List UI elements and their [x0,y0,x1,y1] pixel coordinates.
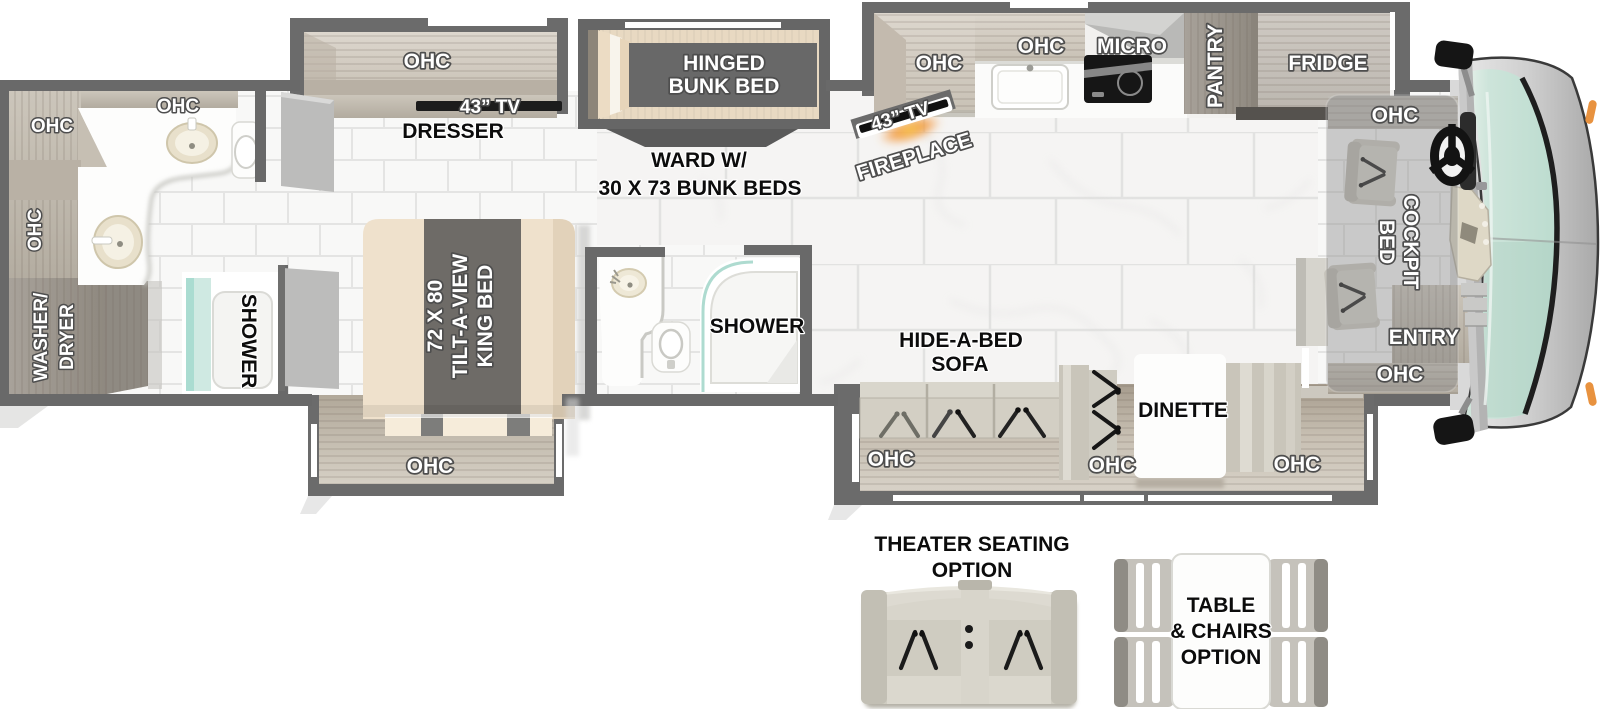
svg-text:SOFA: SOFA [931,353,988,376]
svg-text:DINETTE: DINETTE [1138,399,1228,422]
svg-text:DRESSER: DRESSER [402,120,504,143]
svg-text:HINGED: HINGED [683,52,765,75]
svg-text:FRIDGE: FRIDGE [1288,52,1367,75]
svg-text:OHC: OHC [868,448,915,471]
svg-text:OHC: OHC [1377,363,1424,386]
svg-text:COCKPIT: COCKPIT [1399,195,1422,290]
svg-text:OHC: OHC [157,96,200,117]
svg-text:WARD W/: WARD W/ [651,149,747,172]
svg-text:SHOWER: SHOWER [710,315,805,338]
svg-text:43” TV: 43” TV [460,97,521,118]
svg-text:OHC: OHC [916,52,963,75]
svg-text:OHC: OHC [407,455,454,478]
svg-text:MICRO: MICRO [1097,35,1167,58]
svg-text:OPTION: OPTION [932,559,1013,582]
svg-text:OHC: OHC [25,209,46,252]
svg-text:TABLE: TABLE [1187,594,1255,617]
svg-text:& CHAIRS: & CHAIRS [1170,620,1272,643]
svg-text:OHC: OHC [31,116,74,137]
svg-text:OHC: OHC [404,50,451,73]
svg-text:OHC: OHC [1018,35,1065,58]
svg-text:TILT-A-VIEW: TILT-A-VIEW [449,254,472,379]
svg-text:OHC: OHC [1372,104,1419,127]
svg-text:BED: BED [1375,220,1398,264]
svg-text:HIDE-A-BED: HIDE-A-BED [899,329,1023,352]
svg-text:ENTRY: ENTRY [1389,326,1459,349]
svg-text:OPTION: OPTION [1181,646,1262,669]
svg-text:30 X 73 BUNK BEDS: 30 X 73 BUNK BEDS [598,177,801,200]
svg-text:BUNK BED: BUNK BED [669,75,780,98]
svg-text:SHOWER: SHOWER [237,294,260,389]
svg-text:72 X 80: 72 X 80 [424,280,447,352]
svg-text:KING BED: KING BED [474,265,497,368]
svg-text:OHC: OHC [1274,453,1321,476]
svg-text:THEATER SEATING: THEATER SEATING [874,533,1069,556]
svg-text:OHC: OHC [1089,454,1136,477]
svg-text:PANTRY: PANTRY [1204,24,1227,108]
